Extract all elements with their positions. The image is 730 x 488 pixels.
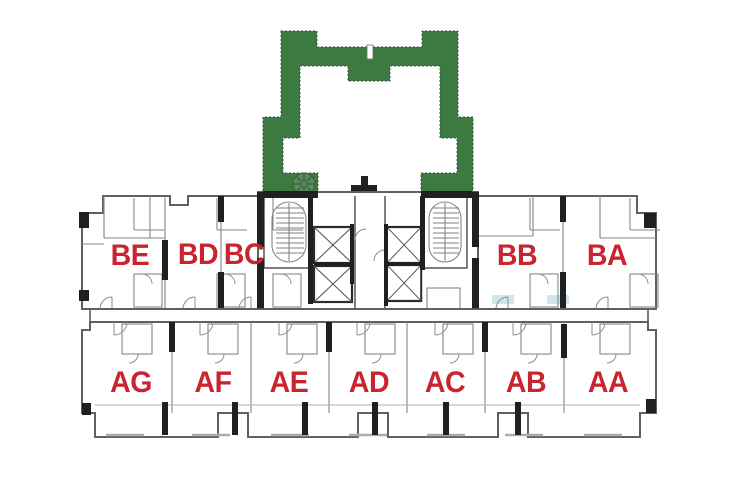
unit-label-af: AF (194, 368, 231, 398)
unit-label-aa: AA (588, 368, 628, 398)
courtyard-outline (263, 31, 473, 195)
unit-label-ba: BA (587, 241, 627, 271)
benchmark-cross-icon (351, 176, 377, 191)
upper-wing (79, 191, 660, 309)
elevator-shaft (314, 266, 352, 302)
unit-label-ac: AC (425, 368, 465, 398)
unit-label-ab: AB (506, 368, 546, 398)
elevator-shaft (387, 265, 421, 301)
unit-label-bd: BD (178, 240, 218, 270)
corridor (90, 309, 648, 322)
bath-floor (492, 295, 514, 304)
unit-label-ae: AE (270, 368, 309, 398)
elevator-shaft (314, 227, 352, 263)
unit-label-bc: BC (224, 240, 264, 270)
courtyard-gate-notch (367, 45, 373, 59)
unit-label-ad: AD (349, 368, 389, 398)
floor-plan: BE BD BC BB BA AG AF AE AD AC AB AA (0, 0, 730, 488)
elevator-shaft (387, 227, 421, 263)
unit-label-ag: AG (110, 368, 152, 398)
unit-label-be: BE (111, 241, 150, 271)
unit-label-bb: BB (497, 241, 537, 271)
